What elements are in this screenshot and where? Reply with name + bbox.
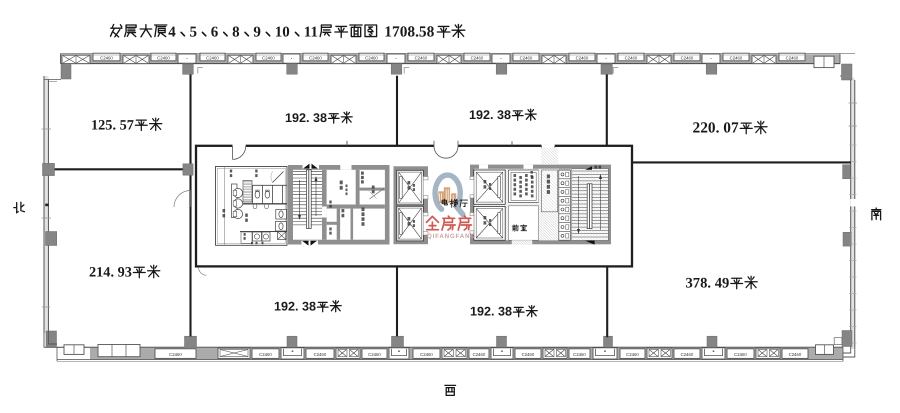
svg-text:6: 6: [211, 25, 219, 41]
svg-text:214. 93: 214. 93: [89, 265, 132, 281]
svg-text:C2460: C2460: [100, 55, 113, 60]
svg-text:C2460: C2460: [789, 352, 802, 357]
svg-text:192. 38: 192. 38: [274, 300, 316, 314]
svg-text:C2460: C2460: [365, 55, 378, 60]
svg-text:C2460: C2460: [520, 55, 533, 60]
svg-text:C2460: C2460: [681, 55, 694, 60]
svg-text:C2460: C2460: [681, 352, 694, 357]
svg-text:C2460: C2460: [309, 55, 322, 60]
svg-text:5: 5: [190, 25, 198, 41]
svg-text:C2460: C2460: [415, 55, 428, 60]
svg-text:QIFANGFANG: QIFANGFANG: [427, 233, 476, 240]
svg-text:1708.58: 1708.58: [384, 24, 434, 41]
svg-text:10: 10: [275, 25, 290, 41]
svg-text:C2460: C2460: [786, 55, 799, 60]
svg-text:C2460: C2460: [259, 352, 272, 357]
svg-text:192. 38: 192. 38: [285, 111, 327, 125]
svg-text:378. 49: 378. 49: [686, 276, 730, 292]
svg-text:C2460: C2460: [730, 55, 743, 60]
svg-text:C2460: C2460: [573, 352, 586, 357]
svg-text:C2460: C2460: [169, 352, 182, 357]
svg-text:C2460: C2460: [576, 55, 589, 60]
svg-text:C2460: C2460: [625, 55, 638, 60]
svg-text:4: 4: [168, 25, 176, 41]
svg-text:8: 8: [232, 25, 240, 41]
svg-text:220. 07: 220. 07: [693, 120, 739, 137]
svg-text:C2460: C2460: [420, 352, 433, 357]
svg-text:125. 57: 125. 57: [91, 117, 134, 133]
svg-text:C2460: C2460: [157, 55, 170, 60]
svg-text:C2460: C2460: [262, 55, 275, 60]
svg-text:C2460: C2460: [471, 55, 484, 60]
svg-text:9: 9: [253, 25, 261, 41]
svg-text:C2460: C2460: [206, 55, 219, 60]
svg-text:C2460: C2460: [626, 352, 639, 357]
svg-text:192. 38: 192. 38: [469, 108, 511, 122]
svg-text:C2460: C2460: [522, 352, 535, 357]
svg-text:C2460: C2460: [734, 352, 747, 357]
svg-text:11: 11: [304, 25, 318, 41]
svg-text:C2460: C2460: [314, 352, 327, 357]
svg-text:C2460: C2460: [473, 352, 486, 357]
svg-text:C2460: C2460: [368, 352, 381, 357]
svg-text:192. 38: 192. 38: [470, 305, 512, 319]
